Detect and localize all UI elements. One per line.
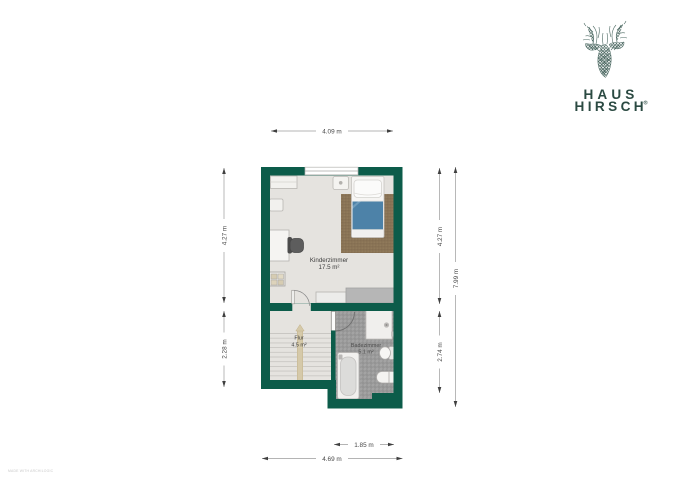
svg-text:5.1 m²: 5.1 m² [358, 350, 373, 356]
svg-text:Badezimmer: Badezimmer [351, 343, 381, 349]
svg-text:HIRSCH: HIRSCH [575, 99, 648, 114]
svg-text:MADE WITH ARCHILOGIC: MADE WITH ARCHILOGIC [8, 469, 54, 473]
svg-text:®: ® [644, 100, 648, 107]
svg-text:4.69 m: 4.69 m [322, 456, 342, 463]
svg-text:4.5 m²: 4.5 m² [291, 343, 306, 349]
svg-text:4.27 m: 4.27 m [437, 227, 444, 247]
svg-text:7.99 m: 7.99 m [453, 269, 460, 289]
svg-text:4.27 m: 4.27 m [221, 226, 228, 246]
svg-text:4.09 m: 4.09 m [322, 128, 342, 135]
svg-text:1.85 m: 1.85 m [354, 442, 374, 449]
svg-text:2.74 m: 2.74 m [437, 342, 444, 362]
svg-text:17.5 m²: 17.5 m² [319, 264, 340, 271]
svg-text:Flur: Flur [294, 336, 303, 342]
svg-text:Kinderzimmer: Kinderzimmer [310, 257, 348, 264]
svg-text:2.28 m: 2.28 m [221, 339, 228, 359]
